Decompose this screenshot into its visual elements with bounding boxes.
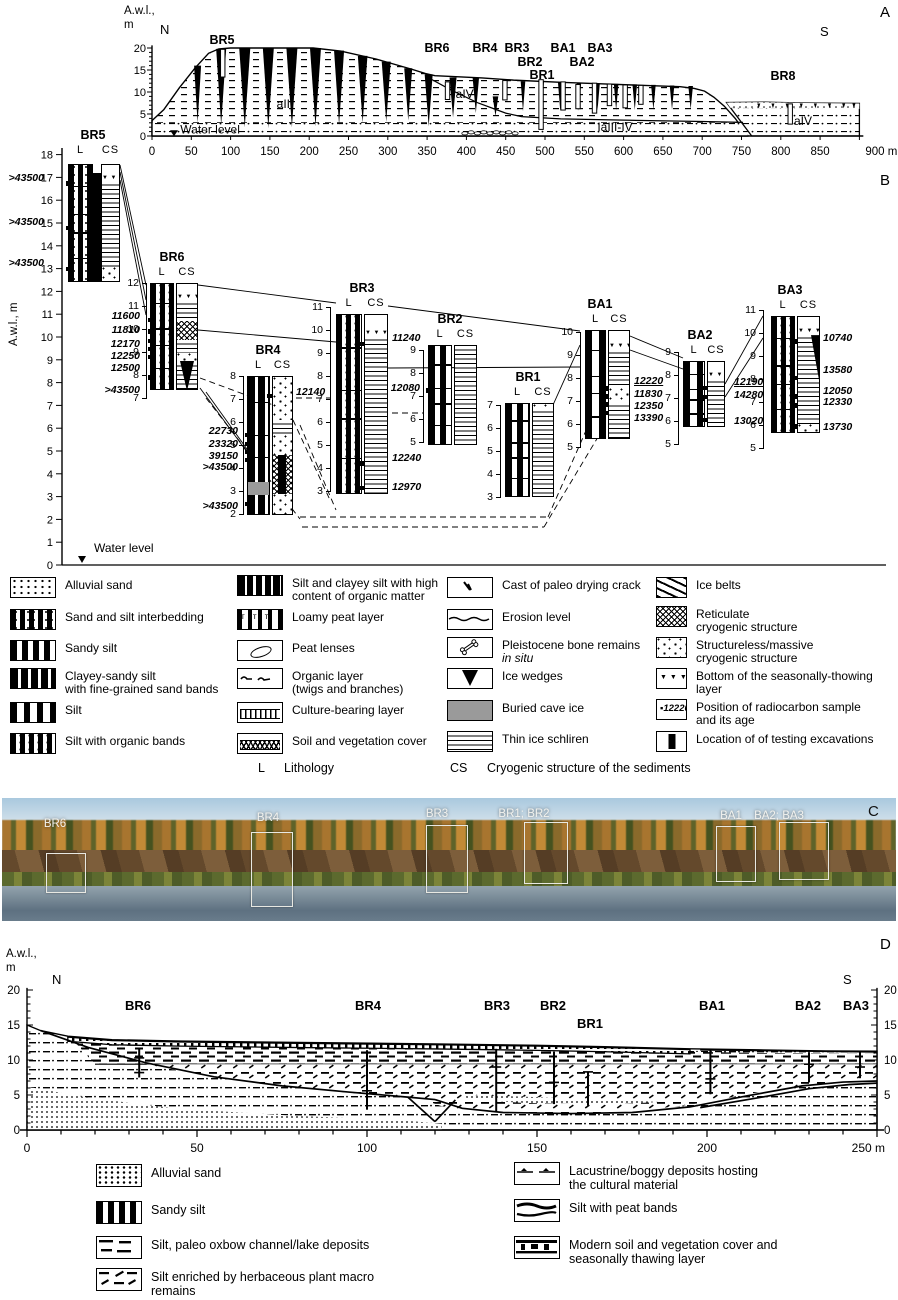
column-tick [326, 491, 331, 492]
photo-site-box-6 [779, 822, 829, 880]
legend-l-abbrev: L [258, 761, 265, 775]
column-tick-label: 7 [303, 393, 323, 405]
legend-d-item-d-peat-bands: Silt with peat bands [514, 1199, 879, 1222]
legend-swatch-d-oxbow-icon [96, 1236, 142, 1259]
legend-label: Silt with organic bands [65, 733, 233, 748]
column-tick-label: 6 [303, 416, 323, 428]
peat-marks: ᴛ ᴛ ᴛ [241, 612, 271, 621]
panel-a-unit-label: aIII [277, 97, 294, 111]
legend-label: Silt with peat bands [569, 1199, 879, 1215]
column-tick [326, 468, 331, 469]
column-name-br6: BR6 [159, 250, 184, 264]
cs-segment [177, 340, 197, 353]
cs-segment [365, 336, 387, 495]
legend-label: Bottom of the seasonally-thowing layer [696, 668, 898, 697]
svg-text:10: 10 [7, 1055, 20, 1067]
c14-sample-mark [245, 502, 250, 507]
c14-sample-mark [702, 386, 707, 391]
cryostructure-column-br4 [272, 376, 293, 515]
legend-label: Erosion level [502, 609, 664, 624]
column-name-ba3: BA3 [777, 283, 802, 297]
panel-d-axis-label: A.w.l., [6, 948, 37, 960]
legend-item-silt-organic: Silt with organic bands [10, 733, 233, 754]
c14-sample-mark [148, 318, 153, 323]
column-tick-label: 7 [473, 399, 493, 411]
legend-label: Location of of testing excavations [696, 731, 898, 746]
thaw-bottom-marks: ▼▼▼▼▼▼ [102, 175, 119, 181]
panel-a-site-label-br5: BR5 [209, 33, 234, 47]
panel-a-south-label: S [820, 24, 829, 39]
svg-text:2: 2 [47, 514, 53, 526]
column-tick [576, 355, 581, 356]
panel-a-north-label: N [160, 22, 169, 37]
svg-text:6: 6 [47, 423, 53, 435]
stratum-line [429, 425, 451, 427]
legend-item-silt: Silt [10, 702, 233, 723]
stratum-line [151, 303, 173, 305]
legend-swatch-bone-icon [447, 637, 493, 658]
panel-d-site-label-br2: BR2 [540, 998, 566, 1013]
column-tick-label: 10 [736, 327, 756, 339]
legend-swatch-d-sandy-silt-icon [96, 1201, 142, 1224]
panel-a-site-label-ba1: BA1 [550, 41, 575, 55]
column-tick [759, 425, 764, 426]
cs-segment [273, 494, 292, 515]
photo-site-box-4 [524, 822, 568, 884]
stratum-line [772, 384, 794, 386]
c14-sample-mark [245, 458, 250, 463]
stratum-line [586, 376, 605, 378]
column-tick [326, 330, 331, 331]
svg-text:7: 7 [47, 400, 53, 412]
c14-date: 12080 [350, 382, 420, 394]
stratum-line [151, 368, 173, 370]
column-tick [239, 468, 244, 469]
column-tick-label: 10 [303, 324, 323, 336]
photo-site-box-3 [426, 825, 468, 893]
c14-sample-mark [245, 450, 250, 455]
column-tick-label: 6 [396, 413, 416, 425]
stratum-line [69, 186, 92, 188]
cs-segment [708, 378, 724, 426]
cs-segment [609, 402, 629, 439]
legend-item-loamy-peat: ᴛ ᴛ ᴛLoamy peat layer [237, 609, 454, 630]
panel-a-letter: A [880, 4, 890, 21]
lithology-column-ba3 [771, 316, 795, 433]
cryostructure-column-br6: ▼▼▼▼▼▼ [176, 283, 198, 390]
column-header-l: L [436, 328, 443, 340]
c14-date: 12500 [70, 362, 140, 374]
legend-label: Organic layer (twigs and branches) [292, 668, 454, 697]
legend-item-cave-ice: Buried cave ice [447, 700, 664, 721]
cs-segment [798, 424, 819, 433]
legend-swatch-d-herb-icon [96, 1268, 142, 1291]
column-tick [239, 422, 244, 423]
svg-text:0: 0 [884, 1125, 890, 1137]
column-header-cs: CS [707, 344, 724, 356]
stratum-line [337, 418, 361, 420]
legend-cs-label: Cryogenic structure of the sediments [487, 761, 691, 775]
cs-segment [102, 267, 119, 282]
c14-sample-mark [702, 418, 707, 423]
column-tick-label: 8 [651, 369, 671, 381]
c14-sample-mark [267, 394, 272, 399]
column-header-cs: CS [800, 299, 817, 311]
thaw-bottom-marks: ▼▼▼▼▼▼ [798, 328, 819, 334]
column-tick [326, 307, 331, 308]
legend-item-culture: Culture-bearing layer [237, 702, 454, 723]
c14-sample-mark [148, 347, 153, 352]
c14-sample-mark [245, 433, 250, 438]
legend-item-peat-lens: Peat lenses [237, 640, 454, 661]
stratum-line [772, 409, 794, 411]
svg-text:15: 15 [134, 65, 146, 77]
svg-text:10: 10 [884, 1055, 897, 1067]
stratum-line [429, 364, 451, 366]
legend-label: Peat lenses [292, 640, 454, 655]
legend-label: Loamy peat layer [292, 609, 454, 624]
legend-label: Sandy silt [151, 1201, 481, 1217]
legend-swatch-d-alluvial-icon [96, 1164, 142, 1187]
column-tick-label: 9 [736, 350, 756, 362]
cryostructure-column-ba3: ▼▼▼▼▼▼ [797, 316, 820, 433]
column-header-l: L [779, 299, 786, 311]
buried-cave-ice-band [248, 482, 269, 496]
legend-d-item-d-alluvial: Alluvial sand [96, 1164, 481, 1187]
column-header-l: L [690, 344, 697, 356]
legend-label-italic: in situ [502, 652, 664, 665]
panel-a-site-label-br2: BR2 [517, 55, 542, 69]
cryostructure-column-ba2: ▼▼▼▼▼▼ [707, 361, 725, 427]
legend-item-crack: Cast of paleo drying crack [447, 577, 664, 598]
column-tick [142, 329, 147, 330]
legend-label: Thin ice schliren [502, 731, 664, 746]
column-tick-label: 9 [303, 347, 323, 359]
column-tick-label: 7 [736, 396, 756, 408]
column-header-l: L [255, 359, 262, 371]
legend-d-item-d-sandy-silt: Sandy silt [96, 1201, 481, 1224]
svg-text:15: 15 [7, 1020, 20, 1032]
column-tick-label: 4 [303, 462, 323, 474]
svg-text:3: 3 [47, 492, 53, 504]
svg-text:250 m: 250 m [852, 1141, 885, 1155]
c14-sample-mark [426, 388, 431, 393]
c14-date: 11810 [70, 324, 140, 336]
cs-segment [177, 321, 197, 341]
stratum-line [684, 374, 704, 376]
lithology-column-br1 [505, 403, 530, 497]
panel-c-letter: C [868, 803, 879, 820]
column-tick-label: 7 [553, 395, 573, 407]
ice-wedge [278, 455, 287, 494]
svg-text:16: 16 [41, 195, 53, 207]
column-tick [142, 375, 147, 376]
c14-date: 13580 [823, 364, 852, 376]
column-tick [142, 398, 147, 399]
legend-label: Alluvial sand [65, 577, 233, 592]
legend-d-item-d-oxbow: Silt, paleo oxbow channel/lake deposits [96, 1236, 481, 1259]
legend-swatch-massive-icon [656, 637, 687, 658]
svg-text:11: 11 [42, 309, 53, 321]
column-tick [496, 428, 501, 429]
c14-sample-mark [148, 355, 153, 360]
ice-wedge-strip [93, 173, 101, 282]
column-header-cs: CS [534, 386, 551, 398]
c14-sample-mark [792, 394, 797, 399]
panel-a-axis-label: m [124, 19, 134, 31]
c14-date: 10740 [823, 332, 852, 344]
svg-text:12: 12 [41, 286, 53, 298]
stratum-line [151, 328, 173, 330]
legend-label: Ice wedges [502, 668, 664, 683]
column-tick [759, 402, 764, 403]
c14-sample-mark [702, 395, 707, 400]
legend-label: Position of radiocarbon sample and its a… [696, 699, 898, 728]
panel-c-photo: BR6BR4BR3BR1; BR2BA1BA2; BA3 [2, 798, 896, 921]
column-tick [576, 378, 581, 379]
svg-text:8: 8 [47, 378, 53, 390]
svg-text:0: 0 [24, 1141, 31, 1155]
c14-date: 22730 [168, 425, 238, 437]
panel-a-site-label-br3: BR3 [504, 41, 529, 55]
column-name-br4: BR4 [255, 343, 280, 357]
legend-item-soil-cover: Soil and vegetation cover [237, 733, 454, 754]
legend-label: Silt, paleo oxbow channel/lake deposits [151, 1236, 481, 1252]
column-tick [759, 333, 764, 334]
column-tick-label: 8 [303, 370, 323, 382]
c14-sample-mark [66, 267, 71, 272]
legend-swatch-cave-ice-icon [447, 700, 493, 721]
column-tick-label: 5 [553, 441, 573, 453]
column-tick-label: 6 [651, 415, 671, 427]
svg-text:10: 10 [41, 332, 53, 344]
column-header-cs: CS [457, 328, 474, 340]
cryostructure-column-ba1: ▼▼▼▼▼▼ [608, 330, 630, 439]
column-tick [142, 283, 147, 284]
column-tick-label: 8 [553, 372, 573, 384]
legend-swatch-alluvial-icon [10, 577, 56, 598]
legend-label: Soil and vegetation cover [292, 733, 454, 748]
legend-swatch-reticulate-icon [656, 606, 687, 627]
panel-a-site-label-ba3: BA3 [587, 41, 612, 55]
legend-label: Reticulate cryogenic structure [696, 606, 898, 635]
column-tick [496, 497, 501, 498]
column-tick-label: 9 [396, 344, 416, 356]
svg-text:1: 1 [47, 537, 53, 549]
stratum-line [506, 457, 529, 459]
column-tick-label: 8 [216, 370, 236, 382]
column-name-ba2: BA2 [687, 328, 712, 342]
legend-item-excavation: Location of of testing excavations [656, 731, 898, 752]
legend-item-bone: Pleistocene bone remainsin situ [447, 637, 664, 666]
panel-a-unit-label: IaIV [452, 87, 473, 101]
photo-site-label-1: BR6 [44, 818, 66, 830]
legend-swatch-organic-layer-icon [237, 668, 283, 689]
c14-sample-mark [603, 386, 608, 391]
legend-item-c14: ▪12220Position of radiocarbon sample and… [656, 699, 898, 728]
cs-segment [177, 353, 197, 362]
stratum-line [772, 365, 794, 367]
c14-sample-mark [245, 442, 250, 447]
legend-swatch-d-modern-soil-icon [514, 1236, 560, 1259]
column-tick-label: 11 [736, 304, 756, 316]
thaw-bottom-marks: ▼▼▼▼▼▼ [609, 343, 629, 349]
c14-sample-mark [148, 375, 153, 380]
column-tick [576, 424, 581, 425]
legend-label: Pleistocene bone remainsin situ [502, 637, 664, 666]
stratum-line [69, 214, 92, 216]
legend-label: Silt and clayey silt with high content o… [292, 575, 454, 604]
panel-b-letter: B [880, 172, 890, 189]
stratum-line [69, 258, 92, 260]
c14-date: 12170 [70, 338, 140, 350]
stratum-line [248, 457, 269, 459]
cryostructure-column-br1 [532, 403, 554, 497]
legend-item-sandy-silt: Sandy silt [10, 640, 233, 661]
c14-date: >43500 [70, 384, 140, 396]
column-tick-label: 12 [119, 277, 139, 289]
legend-swatch-c14-icon: ▪12220 [656, 699, 687, 720]
column-header-l: L [514, 386, 521, 398]
column-tick-label: 5 [396, 436, 416, 448]
svg-text:0: 0 [140, 131, 146, 143]
svg-text:0: 0 [14, 1125, 20, 1137]
column-header-l: L [592, 313, 599, 325]
c14-sample-mark [359, 342, 364, 347]
column-tick [576, 447, 581, 448]
photo-site-box-2 [251, 832, 293, 907]
legend-label: Cast of paleo drying crack [502, 577, 664, 592]
legend-swatch-ice-belts-icon [656, 577, 687, 598]
column-tick-label: 4 [473, 468, 493, 480]
column-tick [496, 474, 501, 475]
panel-d-site-label-br6: BR6 [125, 998, 151, 1013]
svg-text:200: 200 [697, 1141, 717, 1155]
column-tick-label: 5 [651, 438, 671, 450]
legend-d-item-d-lacustrine: Lacustrine/boggy deposits hosting the cu… [514, 1162, 879, 1192]
excavation-bar [668, 734, 675, 749]
soil-band [240, 740, 280, 750]
column-tick [142, 352, 147, 353]
svg-text:5: 5 [47, 446, 53, 458]
column-tick [674, 398, 679, 399]
panel-d-site-label-br3: BR3 [484, 998, 510, 1013]
legend-swatch-silt-organic-icon [10, 733, 56, 754]
stratum-line [337, 458, 361, 460]
stratum-line [248, 402, 269, 404]
stratum-line [248, 435, 269, 437]
cryostructure-column-br5: ▼▼▼▼▼▼ [101, 164, 120, 283]
svg-text:4: 4 [47, 469, 53, 481]
legend-item-ice-wedge: Ice wedges [447, 668, 664, 689]
cs-segment [609, 349, 629, 388]
column-tick [759, 379, 764, 380]
column-tick-label: 6 [473, 422, 493, 434]
column-tick-label: 5 [303, 439, 323, 451]
column-header-cs: CS [274, 359, 291, 371]
stratum-line [684, 413, 704, 415]
legend-swatch-sandy-silt-icon [10, 640, 56, 661]
legend-swatch-high-organic-icon [237, 575, 283, 596]
column-tick-label: 8 [736, 373, 756, 385]
lithology-column-br2 [428, 345, 452, 445]
c14-sample-mark [66, 181, 71, 186]
c14-date: 11600 [70, 310, 140, 322]
legend-swatch-d-peat-bands-icon [514, 1199, 560, 1222]
c14-date: 12250 [70, 350, 140, 362]
legend-label: Sandy silt [65, 640, 233, 655]
column-tick [759, 448, 764, 449]
stratum-line [429, 403, 451, 405]
legend-swatch-thaw-bottom-icon: ▼▼▼▼ [656, 668, 687, 689]
column-tick-label: 9 [553, 349, 573, 361]
stratum-line [429, 388, 451, 390]
c14-sample-mark [359, 461, 364, 466]
column-header-cs: CS [178, 266, 195, 278]
legend-item-alluvial: Alluvial sand [10, 577, 233, 598]
c14-sample-mark [792, 339, 797, 344]
svg-text:14: 14 [41, 241, 53, 253]
stratum-line [586, 350, 605, 352]
panel-a-site-label-br1: BR1 [529, 68, 554, 82]
column-name-br1: BR1 [515, 370, 540, 384]
ice-wedge-shape [462, 670, 478, 686]
column-tick [419, 396, 424, 397]
figure-canvas: 0510152005010015020025030035040045050055… [0, 0, 898, 1300]
culture-band [240, 709, 280, 719]
legend-swatch-erosion-icon [447, 609, 493, 630]
column-header-l: L [158, 266, 165, 278]
legend-swatch-ice-wedge-icon [447, 668, 493, 689]
thaw-bottom-marks: ▼▼▼▼▼▼ [708, 372, 724, 378]
c14-sample-mark [603, 402, 608, 407]
c14-date: 13730 [823, 421, 852, 433]
cs-segment [273, 377, 292, 420]
lithology-column-ba1 [585, 330, 606, 439]
svg-text:5: 5 [140, 109, 146, 121]
legend-label: Silt [65, 702, 233, 717]
svg-text:10: 10 [134, 87, 146, 99]
panel-d-cross-section: 0055101015152020050100150200250 m [0, 930, 898, 1162]
column-tick [759, 356, 764, 357]
c14-sample-mark [359, 486, 364, 491]
column-tick [142, 306, 147, 307]
svg-text:18: 18 [41, 150, 53, 162]
legend-label: Lacustrine/boggy deposits hosting the cu… [569, 1162, 879, 1192]
column-tick [576, 401, 581, 402]
legend-label: Structureless/massive cryogenic structur… [696, 637, 898, 666]
c14-date: 12970 [392, 481, 421, 493]
cryostructure-column-br3: ▼▼▼▼▼▼ [364, 314, 388, 495]
column-tick [239, 491, 244, 492]
c14-sample-text: ▪12220 [660, 703, 687, 714]
svg-text:5: 5 [14, 1090, 20, 1102]
svg-text:9: 9 [47, 355, 53, 367]
svg-text:100: 100 [357, 1141, 377, 1155]
legend-item-clayey: Clayey-sandy silt with fine-grained sand… [10, 668, 233, 697]
column-tick-label: 5 [736, 442, 756, 454]
panel-a-site-label-br8: BR8 [770, 69, 795, 83]
panel-d-site-label-br1: BR1 [577, 1016, 603, 1031]
column-tick [674, 375, 679, 376]
legend-swatch-excavation-icon [656, 731, 687, 752]
legend-item-thaw-bottom: ▼▼▼▼Bottom of the seasonally-thowing lay… [656, 668, 898, 697]
legend-label: Culture-bearing layer [292, 702, 454, 717]
c14-sample-mark [792, 376, 797, 381]
column-tick [326, 353, 331, 354]
legend-swatch-clayey-icon [10, 668, 56, 689]
column-tick-label: 5 [473, 445, 493, 457]
